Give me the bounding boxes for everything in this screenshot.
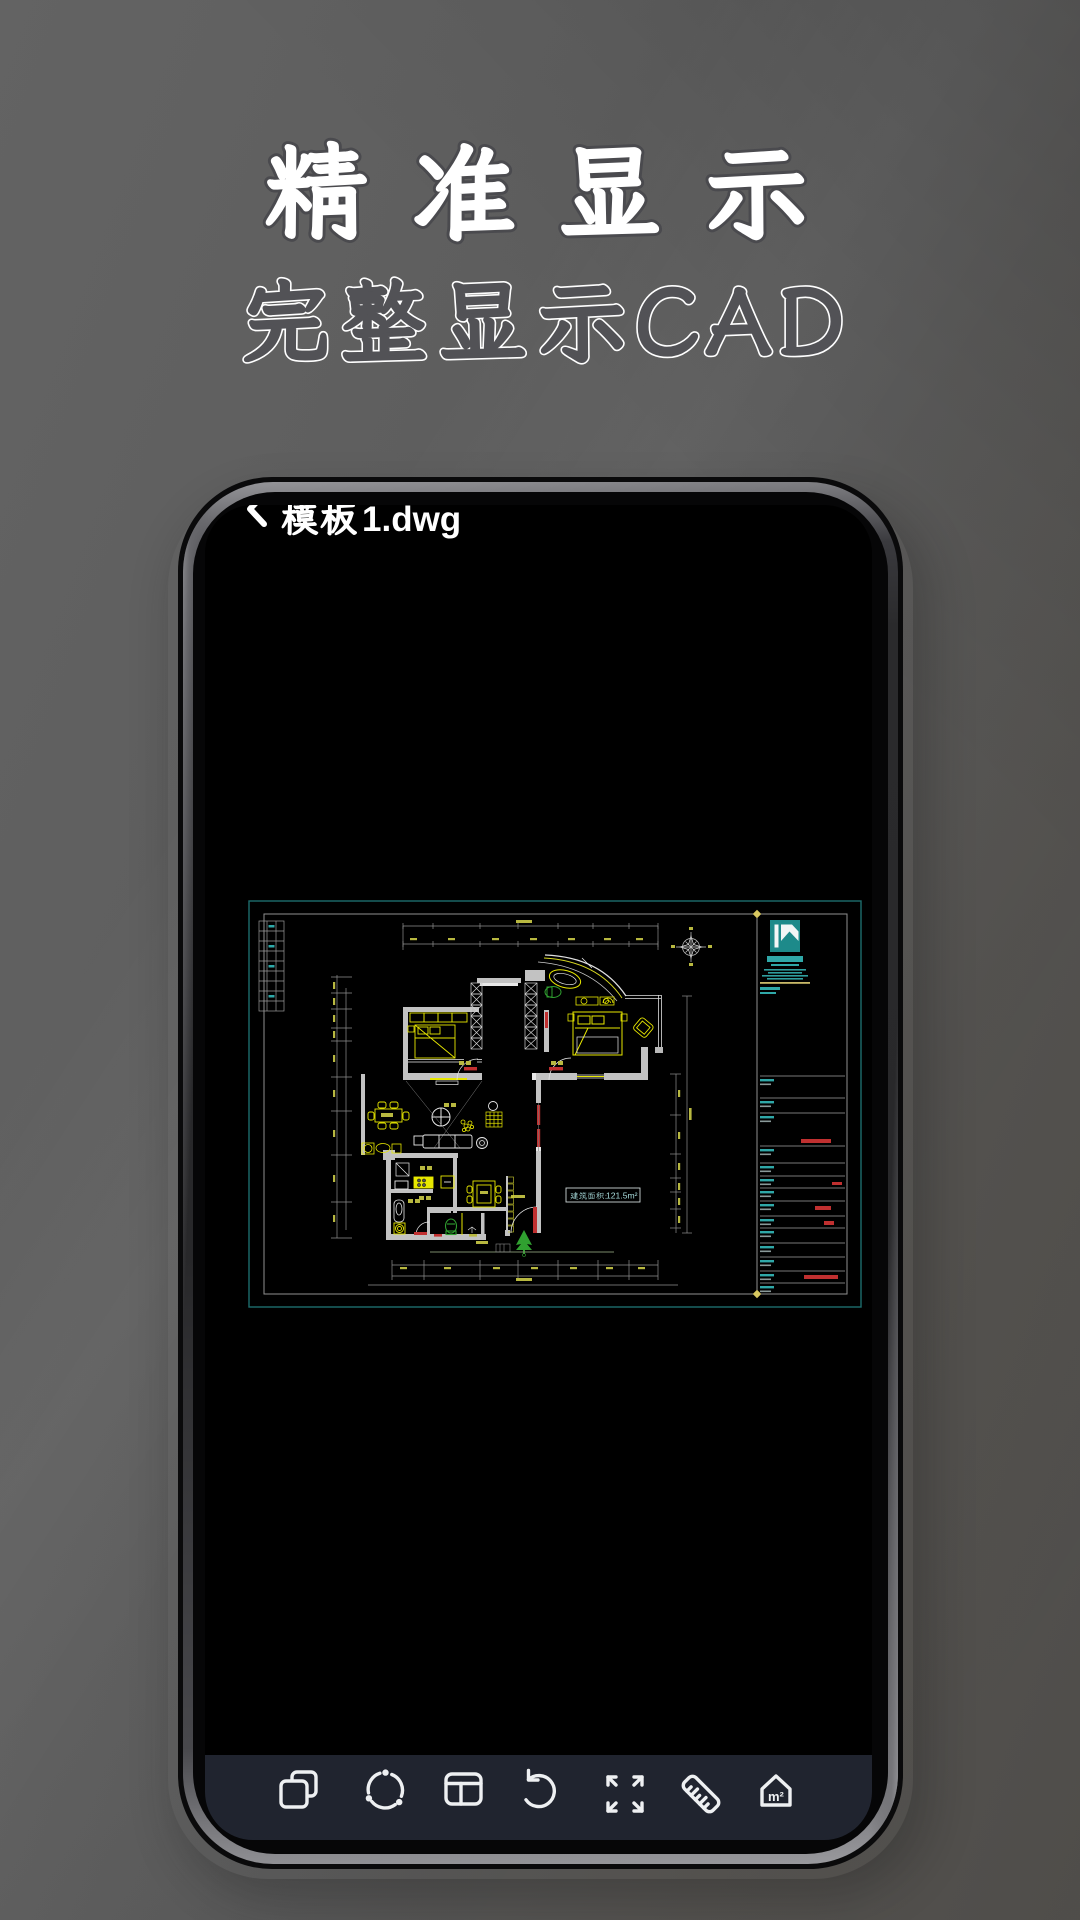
svg-text:1.dwg: 1.dwg (362, 505, 461, 539)
svg-text:121.5m²: 121.5m² (606, 1191, 638, 1201)
svg-text:m²: m² (768, 1789, 785, 1804)
